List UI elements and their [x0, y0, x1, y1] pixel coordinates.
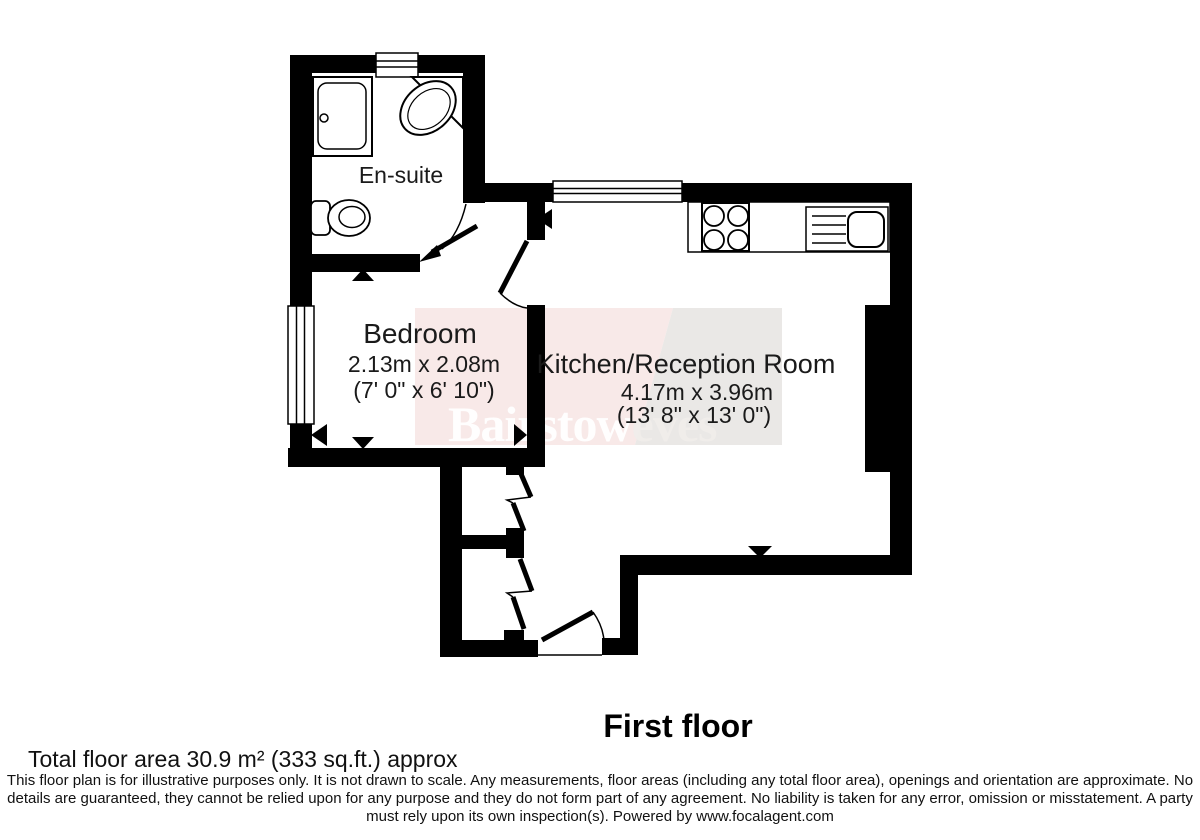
ensuite-window-icon — [376, 53, 418, 77]
kitchen-window-icon — [553, 181, 682, 202]
wall-ensuite-bottom — [290, 254, 420, 272]
sink-icon — [806, 207, 888, 251]
bedroom-label: Bedroom — [363, 318, 477, 349]
wall-bifold-bottom-block — [504, 630, 524, 648]
disclaimer-line-1: This floor plan is for illustrative purp… — [0, 772, 1200, 790]
floor-plan: Bairstoweves — [0, 0, 1200, 700]
wall-kitchen-bottom — [620, 555, 912, 575]
toilet-icon — [311, 200, 370, 236]
kitchen-door-swing-icon — [500, 241, 527, 308]
kitchen-label: Kitchen/Reception Room — [537, 349, 836, 379]
disclaimer-line-3: must rely upon its own inspection(s). Po… — [0, 808, 1200, 826]
kitchen-dims-imperial: (13' 8" x 13' 0") — [617, 402, 771, 428]
bifold-door-icon-top — [507, 467, 531, 531]
wall-kitchen-top — [463, 183, 912, 202]
wall-step-block — [602, 638, 638, 655]
disclaimer-line-2: details are guaranteed, they cannot be r… — [0, 790, 1200, 808]
bifold-door-icon-bottom — [507, 559, 532, 629]
ensuite-door-swing-icon — [419, 204, 477, 262]
disclaimer: This floor plan is for illustrative purp… — [0, 772, 1200, 826]
floorplan-page: Bairstoweves — [0, 0, 1200, 840]
measurement-arrow-bedroom-left — [311, 424, 327, 446]
shower-icon — [313, 77, 372, 156]
wall-kitchen-right — [890, 183, 912, 575]
ensuite-label: En-suite — [359, 162, 443, 188]
wall-lower-left — [440, 448, 462, 657]
wall-bedroom-divider — [527, 305, 545, 457]
bedroom-dims-imperial: (7' 0" x 6' 10") — [353, 377, 494, 403]
entrance-door-swing-icon — [538, 612, 604, 655]
bedroom-window-icon — [288, 306, 314, 424]
hob-icon — [702, 203, 749, 251]
floor-title: First floor — [603, 708, 752, 745]
bedroom-dims-metric: 2.13m x 2.08m — [348, 351, 500, 377]
wall-right-pillar — [865, 305, 892, 472]
measurement-arrow-bedroom-bottom — [352, 437, 374, 449]
wall-closet-divider-block — [506, 528, 524, 558]
corner-basin-icon — [390, 70, 467, 146]
total-floor-area: Total floor area 30.9 m² (333 sq.ft.) ap… — [28, 746, 458, 773]
wall-closet-divider — [462, 535, 512, 549]
